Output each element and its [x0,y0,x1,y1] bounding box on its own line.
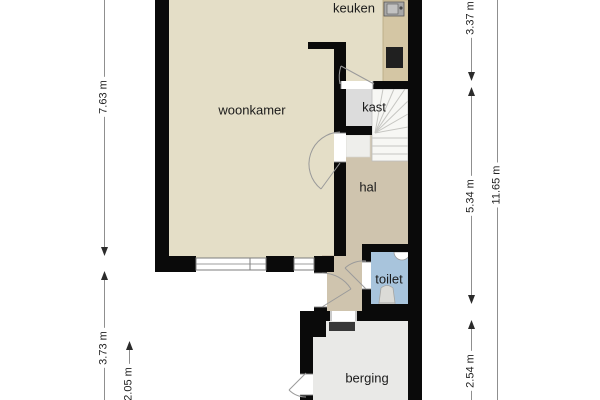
kitchen-sink-basin [387,4,398,14]
windows [196,258,314,270]
kast-floor [346,89,372,126]
berging-passage-opening [330,311,357,321]
dimension-label-left-entry: 2.05 m [123,364,136,400]
berging-step [329,322,355,331]
dimension-label-left-lower: 3.73 m [98,328,111,368]
wall-segment [266,256,294,272]
wall-segment [313,321,326,337]
staircase-floor [372,89,408,161]
arrow-up-icon [126,341,133,350]
wall-segment [300,311,421,321]
arrow-down-icon [468,72,475,81]
woonkamer-door-opening [334,133,346,162]
arrow-up-icon [468,320,475,329]
berging-floor [312,318,410,400]
floorplan-drawing [0,0,600,400]
arrow-down-icon [101,247,108,256]
front-door-opening [314,273,327,307]
wall-segment [155,256,196,272]
kitchen-faucet [399,6,402,9]
dimension-label-right-storage: 2.54 m [465,351,478,391]
keuken-door-opening [341,81,373,89]
staircase-icon [372,89,408,161]
stove-icon [386,47,403,68]
floors [162,0,414,400]
arrow-up-icon [101,271,108,280]
kitchen-fixtures [383,0,409,82]
understairs-nook [346,135,370,157]
wall-segment [408,0,422,400]
wall-segment [155,0,169,272]
dimension-label-left-living: 7.63 m [98,77,111,117]
floorplan-page: keuken woonkamer kast hal toilet berging… [0,0,600,400]
arrow-down-icon [468,295,475,304]
dimension-label-right-kitchen: 3.37 m [465,0,478,38]
arrow-up-icon [468,87,475,96]
toilet-bowl-icon [379,286,395,304]
dimension-label-right-total: 11.65 m [491,163,504,208]
dimension-label-right-hall: 5.34 m [465,176,478,216]
toilet-door-opening [362,262,371,289]
